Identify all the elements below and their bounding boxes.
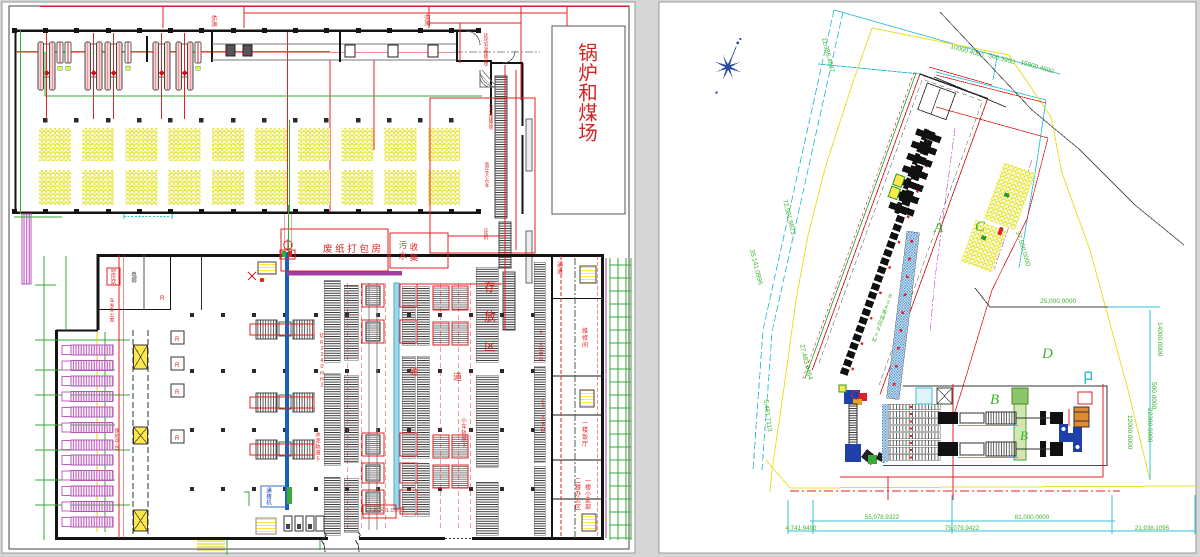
svg-text:81,000.0000: 81,000.0000 (1015, 514, 1050, 521)
svg-text:室: 室 (110, 316, 115, 323)
svg-text:楼: 楼 (266, 493, 272, 501)
svg-text:小: 小 (461, 417, 467, 425)
svg-text:一: 一 (585, 479, 591, 485)
svg-text:上料区 1.0米宽: 上料区 1.0米宽 (368, 506, 405, 514)
svg-text:K: K (320, 340, 324, 346)
svg-text:污: 污 (399, 240, 408, 250)
svg-text:部: 部 (585, 503, 591, 511)
svg-text:楼: 楼 (582, 426, 588, 434)
svg-text:放: 放 (484, 309, 496, 323)
svg-text:泥: 泥 (315, 437, 321, 445)
svg-text:75,079.9422: 75,079.9422 (945, 525, 980, 532)
svg-text:站: 站 (111, 279, 117, 287)
svg-text:卖: 卖 (585, 498, 591, 505)
svg-text:废 纸 打 包 房: 废 纸 打 包 房 (323, 243, 381, 255)
svg-text:楼: 楼 (585, 484, 591, 492)
svg-text:办: 办 (575, 490, 581, 498)
svg-text:14000.0000: 14000.0000 (1156, 322, 1163, 357)
svg-text:4,741.9400: 4,741.9400 (786, 525, 818, 532)
svg-text:煤: 煤 (578, 103, 598, 125)
svg-text:2: 2 (320, 352, 323, 358)
svg-text:C: C (975, 219, 986, 235)
svg-text:M: M (541, 428, 546, 434)
svg-text:公: 公 (575, 498, 581, 505)
svg-text:R: R (175, 436, 180, 442)
svg-text:22300.0000: 22300.0000 (1146, 408, 1153, 443)
svg-text:二: 二 (575, 479, 581, 485)
svg-text:间: 间 (582, 341, 588, 349)
svg-text:2: 2 (320, 346, 323, 352)
svg-text:4: 4 (320, 358, 323, 364)
svg-text:场: 场 (578, 123, 598, 145)
svg-text:和: 和 (578, 83, 598, 105)
svg-text:25,000.0000: 25,000.0000 (1040, 298, 1077, 305)
svg-text:车: 车 (461, 423, 467, 431)
svg-text:2: 2 (320, 382, 323, 388)
svg-text:集: 集 (410, 253, 419, 263)
svg-text:维: 维 (582, 327, 588, 335)
svg-text:水: 水 (399, 251, 408, 261)
svg-text:楼: 楼 (575, 484, 581, 492)
svg-text:饭: 饭 (582, 433, 588, 441)
svg-text:弱: 弱 (131, 277, 137, 284)
svg-text:切: 切 (319, 333, 325, 340)
svg-text:B: B (1020, 428, 1028, 443)
svg-text:R: R (175, 390, 180, 396)
svg-text:道: 道 (315, 448, 321, 456)
svg-text:标高: 标高 (210, 15, 218, 27)
svg-text:标高: 标高 (423, 14, 431, 26)
svg-text:炉: 炉 (578, 63, 598, 85)
svg-text:收: 收 (410, 242, 419, 252)
svg-text:m: m (320, 376, 325, 382)
svg-text:D: D (1041, 346, 1053, 362)
svg-text:M: M (539, 357, 543, 363)
svg-text:500.0000: 500.0000 (1150, 382, 1157, 409)
svg-text:锅: 锅 (578, 43, 598, 65)
svg-text:厅: 厅 (582, 441, 588, 448)
svg-text:A: A (933, 220, 944, 236)
svg-text:通: 通 (557, 261, 563, 269)
svg-text:55,078.9322: 55,078.9322 (865, 514, 900, 521)
svg-text:轨: 轨 (461, 428, 467, 436)
svg-text:12000.0000: 12000.0000 (1126, 415, 1133, 450)
svg-text:道: 道 (557, 268, 563, 276)
svg-text:3: 3 (462, 442, 465, 448)
svg-text:小: 小 (585, 490, 591, 498)
svg-text:道: 道 (461, 434, 467, 442)
svg-text:道: 道 (453, 371, 462, 382)
svg-text:存: 存 (484, 280, 496, 294)
svg-text:通: 通 (409, 367, 418, 377)
svg-text:机: 机 (266, 499, 272, 507)
svg-text:B: B (990, 392, 999, 408)
svg-text:通: 通 (266, 487, 272, 495)
svg-text:轨: 轨 (315, 442, 321, 450)
svg-text:m: m (320, 370, 325, 376)
svg-text:0: 0 (320, 364, 323, 370)
svg-text:R: R (160, 296, 165, 302)
svg-text:区: 区 (575, 504, 581, 511)
svg-text:5: 5 (316, 456, 319, 462)
svg-text:一: 一 (582, 421, 588, 427)
svg-text:水: 水 (315, 431, 321, 439)
svg-text:R: R (175, 337, 180, 343)
svg-text:车: 车 (485, 182, 489, 189)
svg-text:21,938.1095: 21,938.1095 (1135, 525, 1170, 532)
svg-text:修: 修 (582, 334, 588, 342)
svg-text:R: R (175, 363, 180, 369)
svg-text:区: 区 (484, 341, 496, 353)
